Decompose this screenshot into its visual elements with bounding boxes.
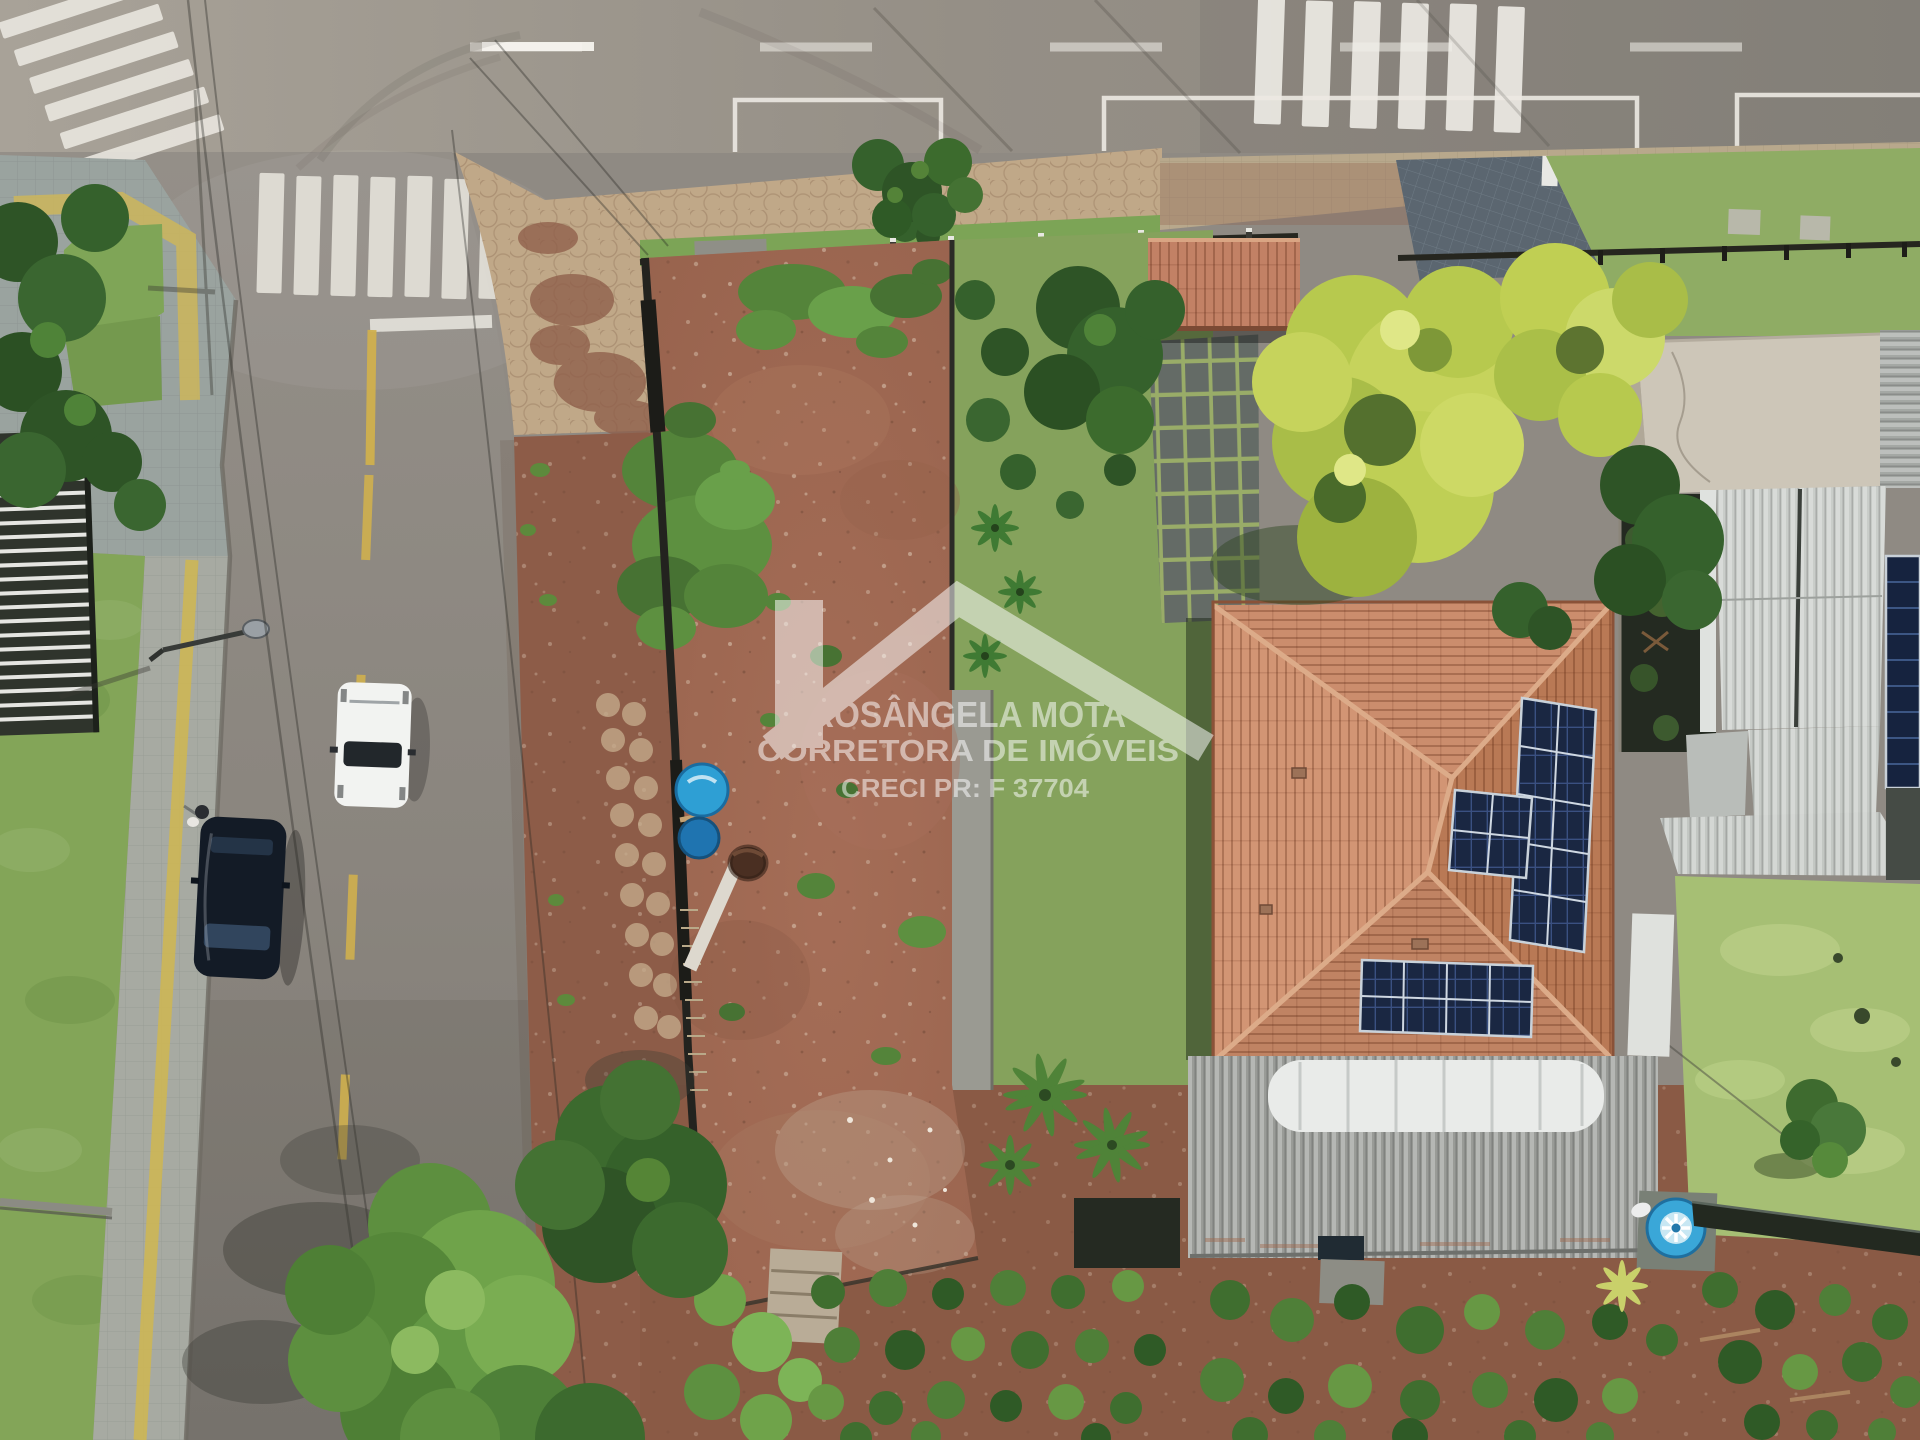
watermark-line3: CRECI PR: F 37704: [841, 773, 1090, 803]
white-car: [328, 682, 432, 809]
house-roof: [1213, 602, 1613, 1062]
corrugated-sliver-tex: [1880, 330, 1920, 488]
watermark-line2: CORRETORA DE IMÓVEIS: [757, 732, 1179, 768]
shaded-courtyard: [1074, 1198, 1180, 1268]
dark-car: [186, 815, 309, 986]
yellow-center-line-solid: [370, 330, 372, 465]
aerial-photo: ROSÂNGELA MOTA CORRETORA DE IMÓVEIS CREC…: [0, 0, 1920, 1440]
house-shadow: [1186, 618, 1213, 1060]
skylight-arch: [1268, 1060, 1604, 1132]
watermark-line1: ROSÂNGELA MOTA: [810, 693, 1126, 735]
aerial-photo-canvas: ROSÂNGELA MOTA CORRETORA DE IMÓVEIS CREC…: [0, 0, 1920, 1440]
metal-roof-big: [1700, 486, 1886, 732]
solar-array-south: [1360, 960, 1533, 1037]
right-sidewalk-stain: [1160, 163, 1410, 225]
fire-pit: [730, 847, 766, 879]
solar-array-center: [1449, 790, 1532, 878]
annex-door: [1318, 1236, 1364, 1260]
white-parapet-strip: [1627, 913, 1674, 1056]
metal-roof-lower: [1660, 726, 1920, 876]
right-edge-solar: [1886, 556, 1920, 880]
